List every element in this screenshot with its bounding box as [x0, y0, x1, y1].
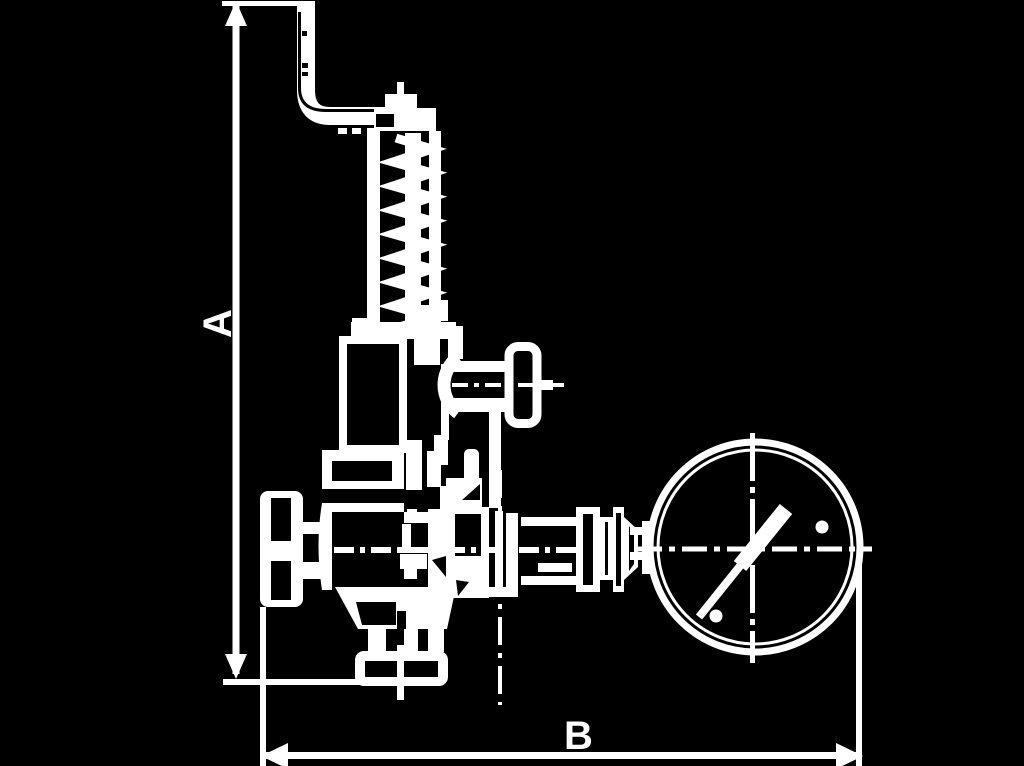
svg-text:B: B — [564, 714, 593, 758]
svg-text:A: A — [196, 309, 240, 338]
